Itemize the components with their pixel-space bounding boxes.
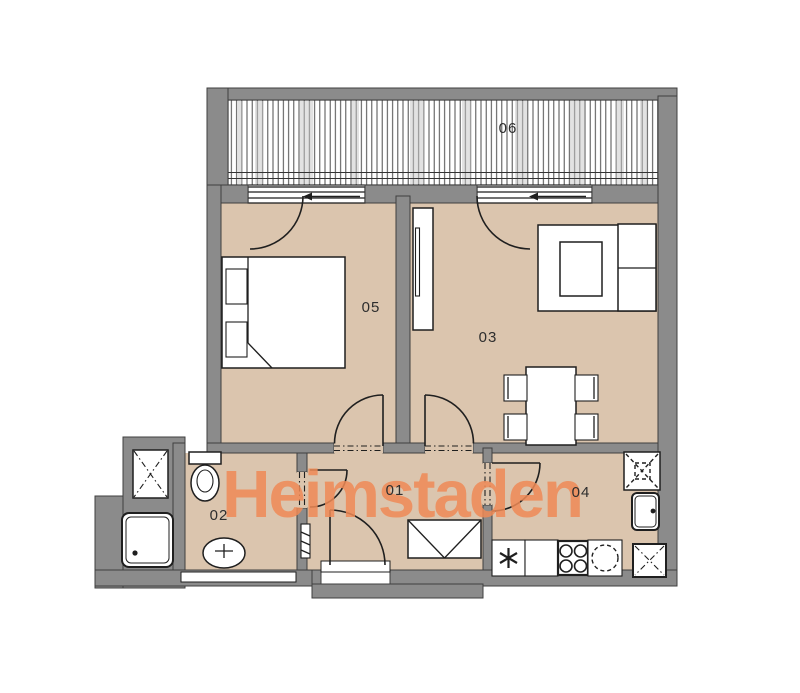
wall-entrance-recess [312, 584, 483, 598]
wall-bathroom-left [173, 443, 185, 573]
wall-balcony-left [207, 88, 228, 194]
tall-cabinet-door [416, 228, 420, 296]
room-label-kitchen: 04 [572, 484, 591, 501]
room-label-balcony: 06 [499, 120, 518, 137]
toilet-tank [189, 452, 221, 464]
bathroom-wall-niche [181, 572, 296, 582]
bed-pillow [226, 322, 247, 357]
wall-bedroom-living [396, 196, 410, 453]
shower [122, 513, 173, 567]
sink-tap [651, 509, 656, 514]
sofa-cushion [560, 242, 602, 296]
wall-left [207, 185, 221, 453]
living-room-window-band [477, 187, 592, 203]
balcony-decking [228, 100, 658, 185]
wall-hallway-top [383, 443, 425, 453]
counter-cabinet [525, 540, 558, 576]
entrance-opening [321, 561, 390, 572]
wall-pier [221, 185, 248, 203]
room-label-bathroom: 02 [210, 507, 229, 524]
bed-pillow [226, 269, 247, 304]
floor-plan-page: Heimstaden 06 05 03 02 01 04 [0, 0, 800, 693]
bedroom-furniture [222, 257, 345, 368]
washing-machine [588, 540, 622, 576]
wall-pier [365, 185, 477, 203]
shower-drain [132, 550, 137, 555]
wall-hallway-top [207, 443, 334, 453]
floor-plan-drawing: Heimstaden 06 05 03 02 01 04 [0, 0, 800, 693]
room-label-hallway: 01 [386, 482, 405, 499]
room-label-bedroom: 05 [362, 299, 381, 316]
wall-right [658, 96, 677, 586]
bedroom-window-band [248, 187, 365, 203]
wall-top [207, 88, 677, 100]
wall-pier [592, 185, 658, 203]
room-label-living-room: 03 [479, 329, 498, 346]
dining-table [526, 367, 576, 445]
